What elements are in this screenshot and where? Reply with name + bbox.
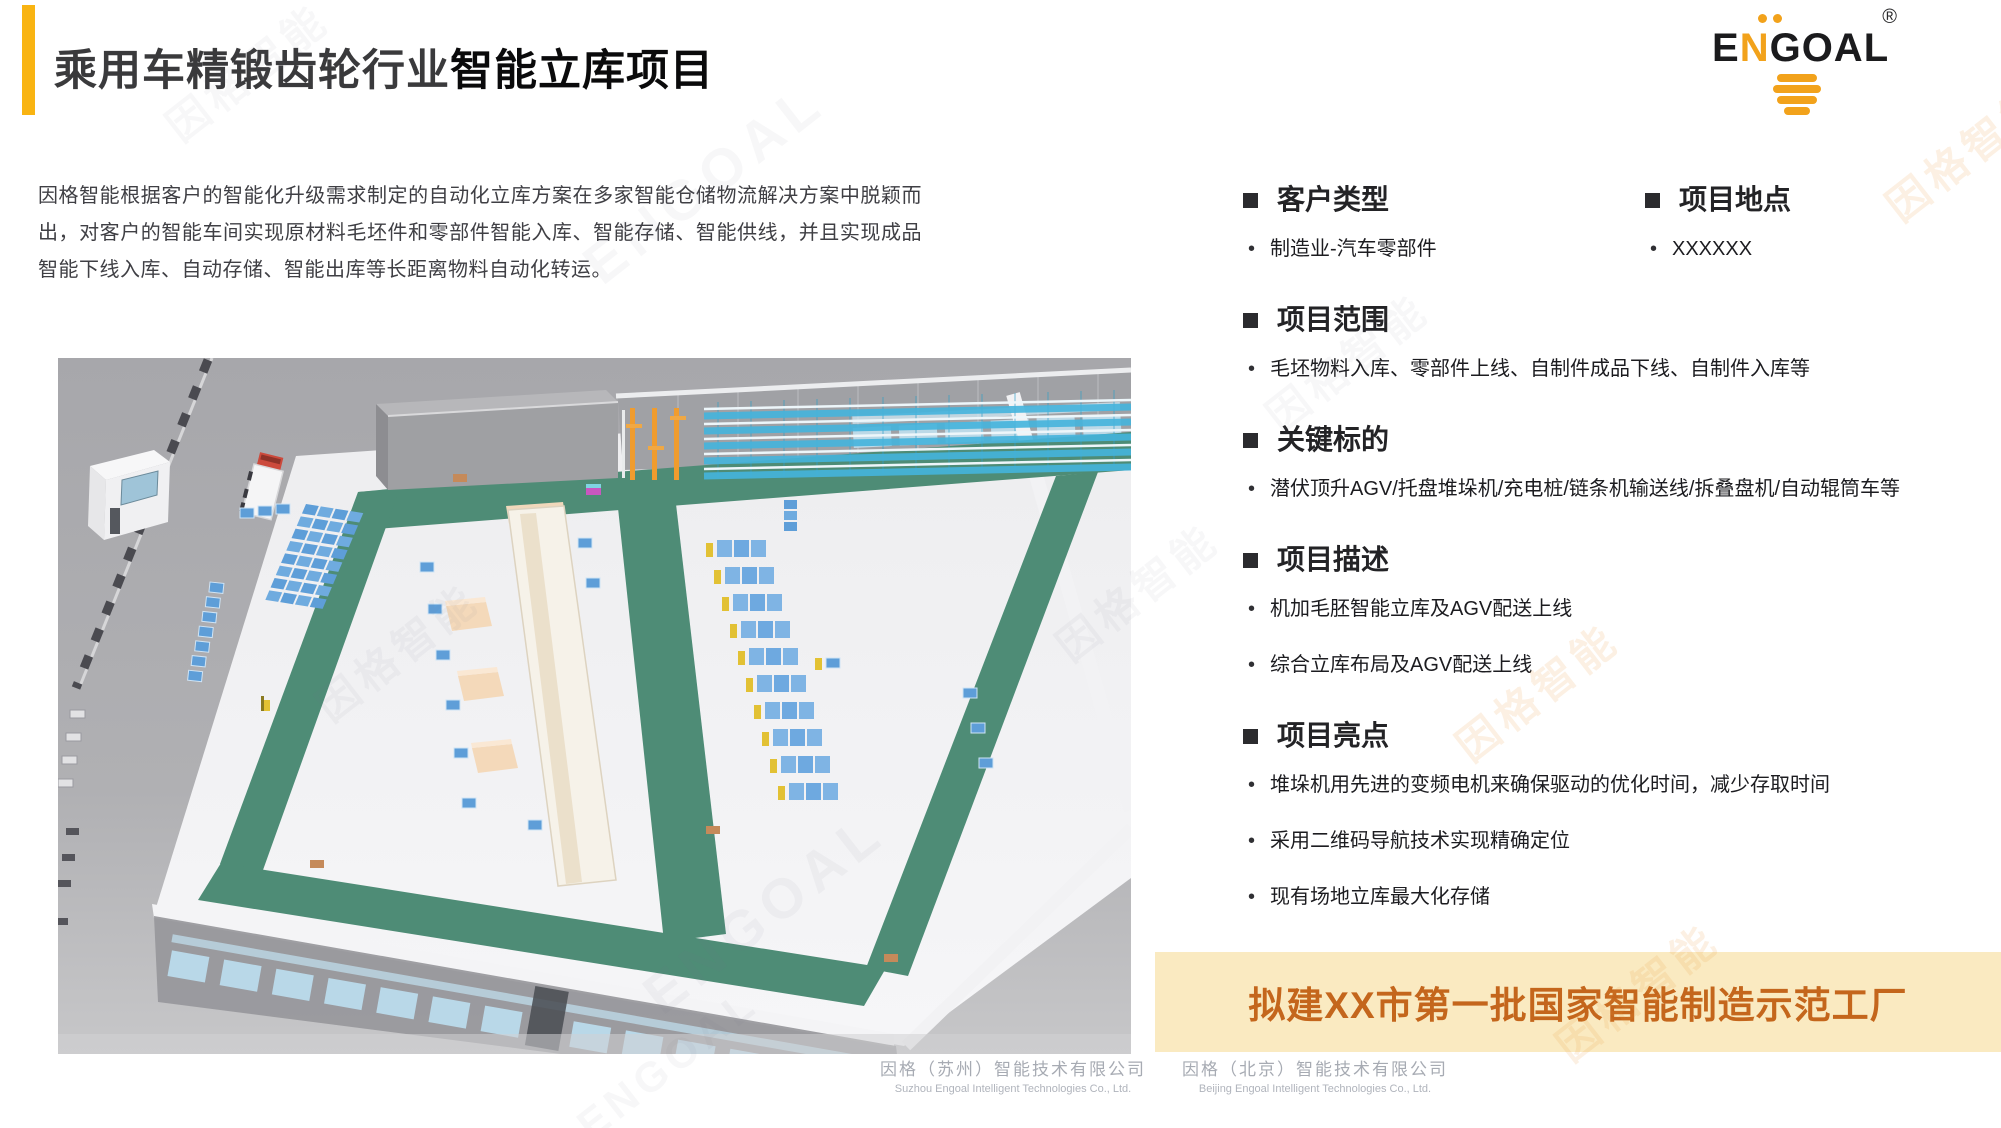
section-title: 项目地点	[1679, 184, 1791, 216]
brand-letter-e: E	[1712, 26, 1740, 70]
company-name-cn: 因格（北京）智能技术有限公司	[1182, 1058, 1448, 1082]
bee-antenna-dot-icon	[1773, 14, 1782, 23]
section-project-scope: 项目范围 毛坯物料入库、零部件上线、自制件成品下线、自制件入库等	[1243, 304, 1989, 392]
page-title-part2: 智能立库项目	[450, 47, 714, 95]
section-item: XXXXXX	[1645, 226, 1989, 272]
page-title: 乘用车精锻齿轮行业智能立库项目	[54, 36, 714, 98]
info-panel: 客户类型 制造业-汽车零部件 项目地点 XXXXXX 项目范围 毛坯物料入库、零…	[1243, 184, 1989, 920]
section-title: 项目描述	[1277, 544, 1389, 576]
section-item: 现有场地立库最大化存储	[1243, 874, 1989, 920]
section-customer-type: 客户类型 制造业-汽车零部件	[1243, 184, 1645, 272]
section-bullet-icon	[1243, 193, 1258, 208]
footer-company-beijing: 因格（北京）智能技术有限公司 Beijing Engoal Intelligen…	[1182, 1058, 1448, 1097]
banner-text: 拟建XX市第一批国家智能制造示范工厂	[1248, 975, 1907, 1029]
section-title: 项目范围	[1277, 304, 1389, 336]
section-item: 采用二维码导航技术实现精确定位	[1243, 818, 1989, 864]
accent-bar	[22, 5, 35, 115]
section-bullet-icon	[1243, 433, 1258, 448]
section-item: 堆垛机用先进的变频电机来确保驱动的优化时间，减少存取时间	[1243, 762, 1989, 808]
section-title: 客户类型	[1277, 184, 1389, 216]
warehouse-3d-render	[58, 358, 1131, 1054]
section-item: 机加毛胚智能立库及AGV配送上线	[1243, 586, 1989, 632]
slide-page: 乘用车精锻齿轮行业智能立库项目 ENGOAL ® 因格智能根据客户的智能化升级需…	[0, 0, 2001, 1128]
section-title: 项目亮点	[1277, 720, 1389, 752]
company-name-en: Beijing Engoal Intelligent Technologies …	[1182, 1082, 1448, 1097]
section-project-location: 项目地点 XXXXXX	[1645, 184, 1989, 272]
company-name-en: Suzhou Engoal Intelligent Technologies C…	[880, 1082, 1146, 1097]
page-title-part1: 乘用车精锻齿轮行业	[54, 47, 450, 95]
section-key-equipment: 关键标的 潜伏顶升AGV/托盘堆垛机/充电桩/链条机输送线/拆叠盘机/自动辊筒车…	[1243, 424, 1989, 512]
section-item: 潜伏顶升AGV/托盘堆垛机/充电桩/链条机输送线/拆叠盘机/自动辊筒车等	[1243, 466, 1989, 512]
section-item: 综合立库布局及AGV配送上线	[1243, 642, 1989, 688]
section-bullet-icon	[1243, 729, 1258, 744]
section-project-description: 项目描述 机加毛胚智能立库及AGV配送上线 综合立库布局及AGV配送上线	[1243, 544, 1989, 688]
registered-mark: ®	[1882, 6, 1897, 29]
company-name-cn: 因格（苏州）智能技术有限公司	[880, 1058, 1146, 1082]
section-project-highlights: 项目亮点 堆垛机用先进的变频电机来确保驱动的优化时间，减少存取时间 采用二维码导…	[1243, 720, 1989, 920]
section-bullet-icon	[1645, 193, 1660, 208]
section-item: 毛坯物料入库、零部件上线、自制件成品下线、自制件入库等	[1243, 346, 1989, 392]
bee-body-icon	[1760, 74, 1834, 115]
brand-letters-goal: GOAL	[1770, 26, 1890, 70]
section-bullet-icon	[1243, 553, 1258, 568]
section-item: 制造业-汽车零部件	[1243, 226, 1645, 272]
brand-letter-n: N	[1740, 26, 1770, 70]
footer: 因格（苏州）智能技术有限公司 Suzhou Engoal Intelligent…	[880, 1058, 1448, 1097]
brand-logo: ENGOAL ®	[1712, 12, 1897, 112]
section-bullet-icon	[1243, 313, 1258, 328]
footer-company-suzhou: 因格（苏州）智能技术有限公司 Suzhou Engoal Intelligent…	[880, 1058, 1146, 1097]
highlight-banner: 拟建XX市第一批国家智能制造示范工厂	[1155, 952, 2001, 1052]
intro-paragraph: 因格智能根据客户的智能化升级需求制定的自动化立库方案在多家智能仓储物流解决方案中…	[38, 178, 922, 289]
warehouse-3d-svg	[58, 358, 1131, 1054]
bee-antenna-dot-icon	[1758, 14, 1767, 23]
brand-wordmark: ENGOAL	[1712, 26, 1889, 71]
section-title: 关键标的	[1277, 424, 1389, 456]
